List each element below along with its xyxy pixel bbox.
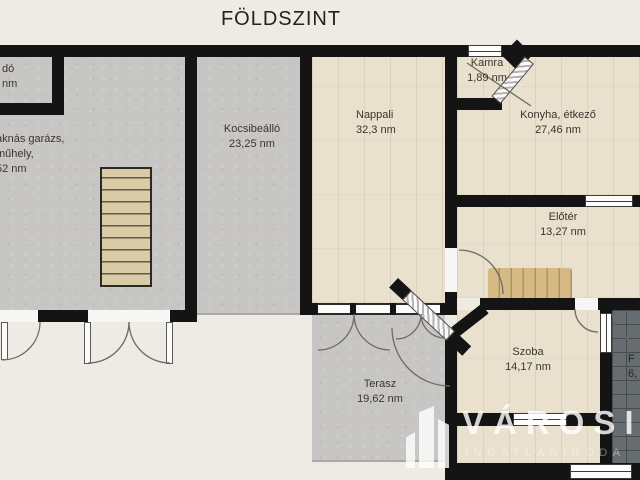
floorplan-canvas: FÖLDSZINT — [0, 0, 640, 480]
watermark-logo-bar-1 — [406, 432, 415, 468]
room-label-kitchen: Konyha, étkező 27,46 nm — [520, 108, 596, 138]
wall-hall-bedroom-1 — [480, 298, 575, 310]
room-label-garage: aknás garázs, műhely, 52 nm — [0, 132, 64, 177]
room-name: Kocsibeálló — [224, 122, 280, 137]
room-area: nm — [2, 77, 17, 92]
room-name: Szoba — [505, 345, 551, 360]
room-label-pantry: Kamra 1,89 nm — [467, 56, 507, 86]
livingroom-hall-door-gap — [445, 248, 457, 292]
room-name: Terasz — [357, 377, 403, 392]
wall-carport-right — [300, 45, 312, 315]
glass-wall-post-4 — [440, 303, 445, 315]
room-name: F — [628, 352, 637, 367]
glass-wall-post-3 — [390, 303, 396, 315]
hall-stairs — [488, 268, 572, 302]
room-label-hall: Előtér 13,27 nm — [540, 210, 586, 240]
room-area: 6, — [628, 367, 637, 382]
garage-door-leaf-2 — [84, 322, 91, 364]
glass-wall-post-1 — [312, 303, 318, 315]
room-label-terrace: Terasz 19,62 nm — [357, 377, 403, 407]
watermark-brand: VÁROSI — [462, 404, 640, 442]
livingroom-floor — [312, 57, 445, 303]
garage-stairs — [100, 167, 152, 287]
room-area: 32,3 nm — [356, 123, 396, 138]
room-area: 1,89 nm — [467, 71, 507, 86]
garage-door-gap-2 — [88, 310, 170, 322]
wall-smallroom-bottom — [0, 103, 64, 115]
garage-floor — [0, 57, 185, 310]
garage-door-leaf-1 — [1, 322, 8, 360]
wall-garage-bottom-1 — [38, 310, 88, 322]
garage-door-gap-1 — [0, 310, 38, 322]
room-name: dó — [2, 62, 17, 77]
bathroom-window — [600, 313, 612, 353]
page-title: FÖLDSZINT — [221, 8, 341, 31]
room-area: 13,27 nm — [540, 225, 586, 240]
watermark-subtitle: INGATLANIRODA — [465, 447, 626, 459]
room-name-line1: aknás garázs, — [0, 132, 64, 147]
room-label-bedroom: Szoba 14,17 nm — [505, 345, 551, 375]
room-name: Nappali — [356, 108, 396, 123]
room-name: Kamra — [467, 56, 507, 71]
garage-door-leaf-3 — [166, 322, 173, 364]
wall-livingroom-right-lower — [445, 292, 457, 315]
room-area: 19,62 nm — [357, 392, 403, 407]
room-label-carport: Kocsibeálló 23,25 nm — [224, 122, 280, 152]
carport-floor — [197, 57, 300, 315]
room-area: 27,46 nm — [520, 123, 596, 138]
room-name: Konyha, étkező — [520, 108, 596, 123]
carport-edge-line — [197, 313, 300, 315]
outer-south-window — [570, 464, 632, 479]
room-label-livingroom: Nappali 32,3 nm — [356, 108, 396, 138]
room-label-smallroom: dó nm — [2, 62, 17, 92]
watermark-logo-bar-3 — [438, 419, 449, 468]
wall-livingroom-right-upper — [445, 45, 457, 248]
room-name: Előtér — [540, 210, 586, 225]
glass-wall-post-2 — [350, 303, 356, 315]
room-name-line2: műhely, — [0, 147, 64, 162]
wall-garage-bottom-2 — [170, 310, 197, 322]
room-label-bathroom: F 6, — [628, 352, 637, 382]
wall-top — [0, 45, 640, 57]
room-area: 14,17 nm — [505, 360, 551, 375]
wall-garage-right — [185, 45, 197, 322]
room-area: 52 nm — [0, 162, 64, 177]
room-area: 23,25 nm — [224, 137, 280, 152]
hall-north-window — [585, 195, 633, 207]
watermark-logo-bar-2 — [419, 406, 434, 468]
hall-bedroom-door-gap — [575, 298, 598, 310]
